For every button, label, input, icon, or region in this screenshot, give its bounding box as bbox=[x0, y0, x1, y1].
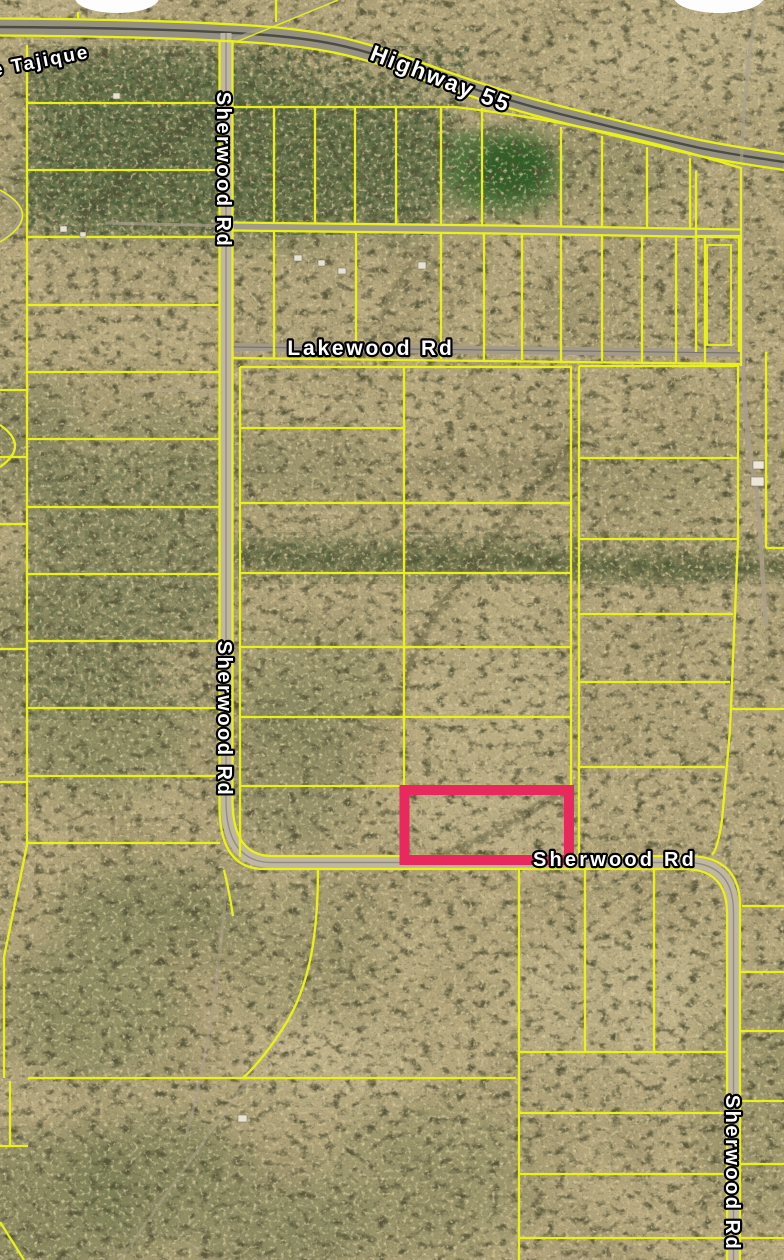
svg-text:Lakewood Rd: Lakewood Rd bbox=[287, 337, 454, 360]
svg-text:Sherwood Rd: Sherwood Rd bbox=[213, 641, 235, 797]
svg-text:Sherwood Rd: Sherwood Rd bbox=[721, 1095, 743, 1251]
svg-text:Sherwood Rd: Sherwood Rd bbox=[533, 849, 697, 871]
svg-text:Sherwood Rd: Sherwood Rd bbox=[212, 92, 234, 248]
